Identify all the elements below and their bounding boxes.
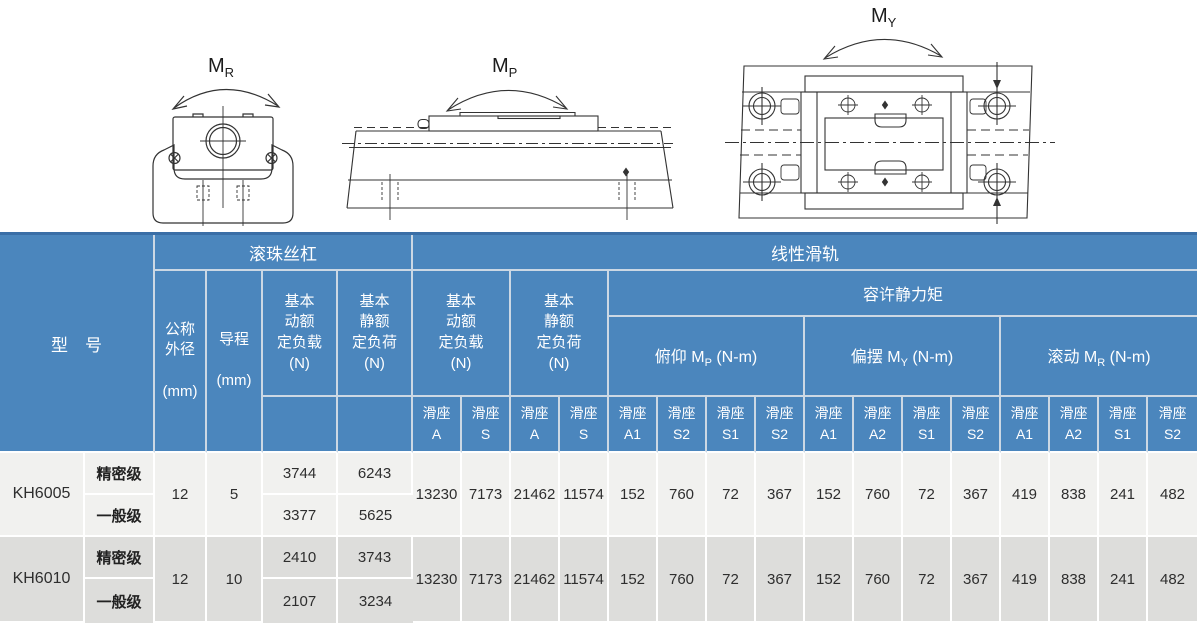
value-cell: 760	[658, 537, 707, 623]
value-cell: 11574	[560, 537, 609, 623]
value-cell: 838	[1050, 453, 1099, 537]
value-cell: 7173	[462, 537, 511, 623]
rail-bolt-hole-icon	[743, 87, 1016, 201]
my-label: MY	[871, 5, 897, 30]
header-slider-col: 滑座S1	[1099, 397, 1148, 453]
header-bs-static-load: 基本 静额 定负荷 (N)	[338, 271, 413, 397]
table-row: KH6010 精密级 12 10 2410 3743 13230 7173 21…	[0, 537, 1197, 579]
value-cell: 760	[854, 453, 903, 537]
carriage-mount-hole-icon	[838, 95, 932, 192]
header-row-groups: 型 号 滚珠丝杠 线性滑轨	[0, 235, 1197, 271]
lead-cell: 10	[207, 537, 263, 623]
header-slider-col: 滑座S1	[707, 397, 756, 453]
model-cell: KH6005	[0, 453, 85, 537]
value-cell: 152	[805, 453, 854, 537]
value-cell: 3744	[263, 453, 338, 495]
rail-keyway	[781, 99, 986, 180]
value-cell: 21462	[511, 453, 560, 537]
value-cell: 152	[805, 537, 854, 623]
datum-diamond-icon	[623, 168, 629, 177]
header-slider-col: 滑座A	[413, 397, 462, 453]
header-bs-dynamic-load: 基本 动额 定负载 (N)	[263, 271, 338, 397]
page: MR	[0, 0, 1200, 637]
header-slider-col: 滑座A2	[1050, 397, 1099, 453]
value-cell: 13230	[413, 453, 462, 537]
header-yaw-my: 偏摆 MY (N-m)	[805, 317, 1001, 397]
header-slider-col: 滑座S	[462, 397, 511, 453]
mr-moment-arrow	[174, 89, 278, 108]
header-slider-col: 滑座A1	[609, 397, 658, 453]
grade-cell: 精密级	[85, 537, 155, 579]
value-cell: 72	[707, 537, 756, 623]
model-cell: KH6010	[0, 537, 85, 623]
header-lg-static-load: 基本 静额 定负荷 (N)	[511, 271, 609, 397]
value-cell: 6243	[338, 453, 413, 495]
header-outer-dia: 公称 外径 (mm)	[155, 271, 207, 453]
value-cell: 3743	[338, 537, 413, 579]
lead-cell: 5	[207, 453, 263, 537]
diagram-end-view-mr: MR	[130, 40, 350, 230]
value-cell: 3234	[338, 579, 413, 623]
spec-table: 型 号 滚珠丝杠 线性滑轨 公称 外径 (mm) 导程 (mm) 基本 动额 定…	[0, 232, 1197, 623]
datum-diamond-icon	[882, 101, 888, 110]
value-cell: 838	[1050, 537, 1099, 623]
value-cell: 367	[756, 453, 805, 537]
value-cell: 72	[903, 537, 952, 623]
value-cell: 152	[609, 537, 658, 623]
header-static-moment: 容许静力矩	[609, 271, 1197, 317]
diagram-top-view-my: MY	[725, 0, 1055, 228]
value-cell: 72	[707, 453, 756, 537]
header-slider-col: 滑座A1	[805, 397, 854, 453]
grade-cell: 精密级	[85, 453, 155, 495]
carriage-side-outline	[418, 113, 598, 132]
header-slider-col: 滑座S2	[1148, 397, 1197, 453]
header-lead: 导程 (mm)	[207, 271, 263, 453]
header-lg-dynamic-load: 基本 动额 定负载 (N)	[413, 271, 511, 397]
value-cell: 11574	[560, 453, 609, 537]
value-cell: 13230	[413, 537, 462, 623]
header-row-params: 公称 外径 (mm) 导程 (mm) 基本 动额 定负载 (N) 基本 静额 定…	[0, 271, 1197, 317]
datum-diamond-icon	[882, 178, 888, 187]
bolt-position-lines	[390, 174, 627, 220]
header-roll-mr: 滚动 MR (N-m)	[1001, 317, 1197, 397]
value-cell: 419	[1001, 453, 1050, 537]
grade-cell: 一般级	[85, 495, 155, 537]
my-moment-arrow	[825, 39, 941, 58]
value-cell: 7173	[462, 453, 511, 537]
header-model: 型 号	[0, 235, 155, 453]
outer-dia-cell: 12	[155, 537, 207, 623]
header-empty-cell	[338, 397, 413, 453]
mp-label: MP	[492, 55, 517, 80]
header-slider-col: 滑座A1	[1001, 397, 1050, 453]
value-cell: 367	[952, 537, 1001, 623]
outer-dia-cell: 12	[155, 453, 207, 537]
rail-plan-outline	[739, 66, 1032, 218]
header-slider-col: 滑座A	[511, 397, 560, 453]
header-slider-col: 滑座S2	[756, 397, 805, 453]
value-cell: 367	[952, 453, 1001, 537]
grade-cell: 一般级	[85, 579, 155, 623]
value-cell: 5625	[338, 495, 413, 537]
value-cell: 2410	[263, 537, 338, 579]
value-cell: 21462	[511, 537, 560, 623]
header-ball-screw: 滚珠丝杠	[155, 235, 413, 271]
value-cell: 152	[609, 453, 658, 537]
header-slider-col: 滑座S2	[658, 397, 707, 453]
diagram-side-view-mp: MP	[340, 50, 675, 225]
header-slider-col: 滑座A2	[854, 397, 903, 453]
header-slider-col: 滑座S1	[903, 397, 952, 453]
mr-label: MR	[208, 55, 234, 80]
value-cell: 760	[854, 537, 903, 623]
value-cell: 419	[1001, 537, 1050, 623]
value-cell: 482	[1148, 453, 1197, 537]
header-empty-cell	[263, 397, 338, 453]
value-cell: 241	[1099, 537, 1148, 623]
header-pitch-mp: 俯仰 MP (N-m)	[609, 317, 805, 397]
value-cell: 241	[1099, 453, 1148, 537]
value-cell: 482	[1148, 537, 1197, 623]
header-linear-guide: 线性滑轨	[413, 235, 1197, 271]
value-cell: 760	[658, 453, 707, 537]
value-cell: 72	[903, 453, 952, 537]
value-cell: 2107	[263, 579, 338, 623]
rail-side-outline	[347, 131, 673, 208]
mp-moment-arrow	[448, 90, 566, 110]
header-slider-col: 滑座S2	[952, 397, 1001, 453]
header-slider-col: 滑座S	[560, 397, 609, 453]
table-row: KH6005 精密级 12 5 3744 6243 13230 7173 214…	[0, 453, 1197, 495]
value-cell: 3377	[263, 495, 338, 537]
value-cell: 367	[756, 537, 805, 623]
